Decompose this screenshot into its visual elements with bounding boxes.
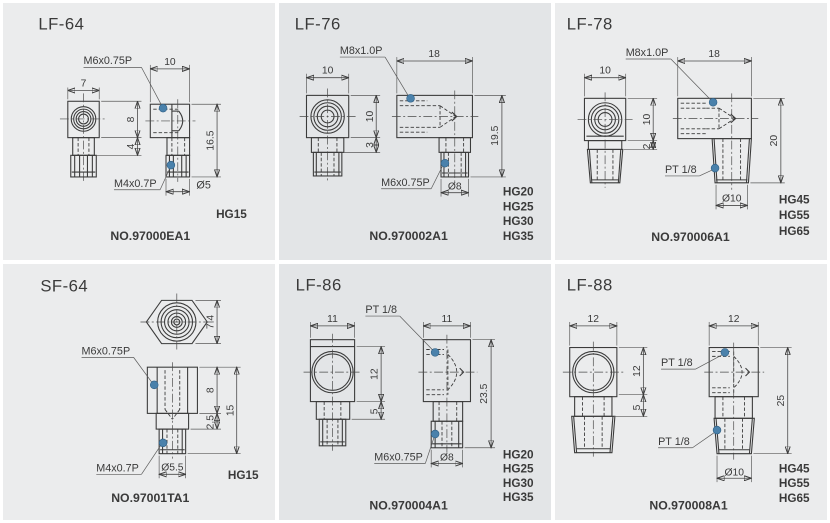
part-number: NO.970008A1 [649, 498, 728, 512]
dimension-lines: 12 12 12 5 25 Ø10 [570, 313, 792, 481]
panel-sf-64: SF-64 [3, 264, 275, 521]
dim-total-height: 16.5 [206, 130, 217, 150]
thread-label-bottom: M6x0.75P [374, 451, 423, 463]
panel-title: LF-78 [567, 15, 613, 34]
rail-label: HG65 [779, 225, 810, 238]
dim-body-height: 10 [642, 113, 653, 125]
panel-title: LF-88 [567, 275, 613, 294]
rail-label: HG65 [779, 491, 810, 504]
drawing-sf-64: SF-64 [3, 264, 275, 521]
thread-point-marker [713, 426, 721, 434]
thread-label-bottom: PT 1/8 [665, 164, 697, 176]
rail-label: HG30 [503, 477, 534, 490]
panel-title: LF-86 [296, 275, 342, 294]
dim-neck-height: 3 [365, 142, 376, 148]
dim-body-height: 12 [370, 368, 381, 380]
dim-side-width: 10 [164, 57, 176, 68]
front-view [304, 333, 362, 450]
thread-label-bottom: M6x0.75P [381, 177, 430, 189]
dim-total-height: 23.5 [479, 383, 490, 403]
thread-point-marker [711, 164, 719, 172]
dim-front-width: 10 [599, 66, 611, 77]
dim-front-width: 12 [588, 313, 600, 324]
drawing-lf-88: LF-88 [555, 264, 827, 521]
thread-label-bottom: M4x0.7P [96, 462, 139, 474]
dim-body-height: 8 [126, 116, 137, 122]
thread-label-top: M6x0.75P [84, 55, 133, 67]
drawing-lf-78: LF-78 [555, 3, 827, 260]
panel-lf-64: LF-64 [3, 3, 275, 260]
thread-point-marker [441, 159, 449, 167]
thread-callouts: PT 1/8 PT 1/8 [658, 348, 729, 447]
rail-label: HG55 [779, 209, 810, 222]
dimension-lines: 7.4 8 2.5 15 Ø5.5 [159, 300, 241, 478]
dim-side-width: 18 [708, 49, 720, 60]
rail-label: HG20 [503, 186, 534, 199]
dim-neck-height: 5 [632, 404, 643, 410]
drawing-lf-86: LF-86 [279, 264, 551, 521]
dim-side-width: 18 [428, 49, 440, 60]
front-view [300, 89, 356, 181]
top-view [140, 293, 214, 350]
dim-front-width: 10 [322, 66, 334, 77]
part-number: NO.970006A1 [651, 230, 730, 244]
dim-total-height: 25 [776, 394, 787, 406]
thread-point-marker [167, 161, 175, 169]
dim-front-width: 7 [81, 79, 87, 90]
rail-label: HG30 [503, 215, 534, 228]
dim-side-width: 11 [442, 313, 453, 324]
dim-stub-diameter: Ø8 [440, 452, 454, 463]
rail-label: HG25 [503, 462, 534, 475]
panel-lf-86: LF-86 [279, 264, 551, 521]
side-view [145, 99, 195, 182]
panel-title: LF-76 [295, 15, 341, 34]
side-view [418, 334, 477, 452]
dim-stub-diameter: Ø8 [448, 182, 462, 193]
rail-label: HG15 [228, 469, 259, 482]
front-view [578, 92, 633, 187]
thread-label-bottom: M4x0.7P [114, 178, 157, 190]
thread-callouts: M8x1.0P M6x0.75P [340, 45, 449, 189]
panel-lf-76: LF-76 [279, 3, 551, 260]
thread-point-marker [431, 430, 439, 438]
thread-callouts: M8x1.0P PT 1/8 [626, 47, 719, 176]
front-view [563, 341, 624, 456]
dim-neck-height: 4 [126, 143, 137, 149]
dimension-lines: 11 11 12 5 23.5 Ø8 [310, 313, 495, 466]
side-view [392, 90, 478, 182]
rail-label: HG45 [779, 462, 810, 475]
dim-front-width: 11 [327, 313, 338, 324]
thread-label-bottom: PT 1/8 [658, 435, 690, 447]
part-number: NO.97001TA1 [111, 490, 189, 504]
dim-body-height: 8 [206, 387, 217, 393]
thread-point-marker [709, 98, 717, 106]
rail-label: HG35 [503, 230, 534, 243]
panel-lf-78: LF-78 [555, 3, 827, 260]
thread-point-marker [721, 348, 729, 356]
drawing-lf-64: LF-64 [3, 3, 275, 260]
thread-point-marker [159, 104, 167, 112]
thread-label-top: PT 1/8 [365, 304, 397, 316]
rail-label: HG25 [503, 200, 534, 213]
dim-neck-height: 2.5 [206, 414, 217, 429]
dim-neck-height: 2 [642, 143, 653, 149]
dim-neck-height: 5 [370, 408, 381, 414]
dim-total-height: 15 [225, 404, 236, 416]
dim-body-height: 10 [365, 111, 376, 123]
thread-label-top: M8x1.0P [626, 47, 669, 59]
side-view [704, 342, 764, 459]
rail-label: HG55 [779, 477, 810, 490]
side-view [147, 362, 197, 458]
dim-hex-width: 7.4 [206, 314, 217, 329]
thread-label-top: M6x0.75P [82, 345, 131, 357]
catalog-sheet: LF-64 [0, 0, 830, 523]
dim-body-height: 12 [632, 365, 643, 377]
rail-label: HG15 [216, 208, 247, 221]
part-number: NO.97000EA1 [110, 229, 190, 243]
thread-point-marker [431, 348, 439, 356]
thread-label-top: M8x1.0P [340, 45, 383, 57]
dim-stub-diameter: Ø5 [196, 180, 210, 192]
dim-stub-diameter: Ø5.5 [161, 462, 184, 473]
panel-lf-88: LF-88 [555, 264, 827, 521]
dim-stub-diameter: Ø10 [724, 467, 744, 478]
panel-title: SF-64 [40, 276, 88, 295]
panel-title: LF-64 [38, 15, 84, 34]
dim-side-width: 12 [728, 313, 740, 324]
thread-callouts: PT 1/8 M6x0.75P [365, 304, 439, 463]
drawing-lf-76: LF-76 [279, 3, 551, 260]
dim-stub-diameter: Ø10 [722, 194, 742, 205]
rail-label: HG35 [503, 490, 534, 503]
front-view [60, 93, 107, 181]
rail-label: HG20 [503, 448, 534, 461]
dim-total-height: 19.5 [490, 125, 501, 145]
dim-total-height: 20 [769, 135, 780, 147]
rail-label: HG45 [779, 193, 810, 206]
thread-point-marker [407, 94, 415, 102]
thread-point-marker [150, 380, 158, 388]
thread-label-top: PT 1/8 [661, 357, 693, 369]
thread-point-marker [159, 438, 167, 446]
part-number: NO.970002A1 [369, 229, 448, 243]
thread-callouts: M6x0.75P M4x0.7P [82, 345, 167, 474]
part-number: NO.970004A1 [369, 498, 448, 512]
